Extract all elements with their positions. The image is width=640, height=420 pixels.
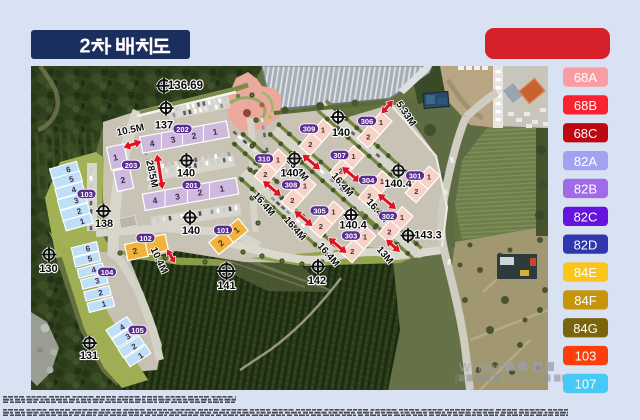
svg-text:308: 308 xyxy=(285,180,298,189)
svg-text:68A: 68A xyxy=(574,70,597,85)
svg-text:137: 137 xyxy=(155,120,173,132)
svg-text:107: 107 xyxy=(575,377,597,392)
svg-text:310: 310 xyxy=(258,154,271,163)
svg-text:84F: 84F xyxy=(574,293,596,308)
svg-text:131: 131 xyxy=(80,350,98,362)
svg-text:143.3: 143.3 xyxy=(414,230,442,242)
svg-text:1: 1 xyxy=(427,173,431,182)
svg-text:1: 1 xyxy=(331,208,335,217)
svg-text:101: 101 xyxy=(217,226,230,235)
svg-text:302: 302 xyxy=(382,212,395,221)
svg-text:82C: 82C xyxy=(574,210,598,225)
svg-text:82A: 82A xyxy=(574,154,597,169)
svg-text:2: 2 xyxy=(366,132,370,141)
svg-text:203: 203 xyxy=(125,161,138,170)
svg-text:2: 2 xyxy=(414,187,418,196)
svg-text:201: 201 xyxy=(185,181,198,190)
svg-text:307: 307 xyxy=(333,151,346,160)
svg-text:68B: 68B xyxy=(574,98,597,113)
svg-text:84E: 84E xyxy=(574,265,597,280)
svg-text:306: 306 xyxy=(361,117,374,126)
svg-text:301: 301 xyxy=(409,171,422,180)
svg-text:303: 303 xyxy=(345,231,358,240)
svg-text:2: 2 xyxy=(319,222,323,231)
svg-text:140: 140 xyxy=(332,127,350,139)
svg-text:140.4: 140.4 xyxy=(339,220,367,232)
svg-text:Windows: Windows xyxy=(503,373,546,385)
svg-text:305: 305 xyxy=(313,206,326,215)
svg-text:102: 102 xyxy=(139,234,152,243)
svg-text:1: 1 xyxy=(276,156,280,165)
svg-text:68C: 68C xyxy=(574,126,598,141)
svg-text:1: 1 xyxy=(363,233,367,242)
svg-text:1: 1 xyxy=(379,118,383,127)
svg-text:2: 2 xyxy=(263,170,267,179)
svg-text:2: 2 xyxy=(79,36,90,58)
svg-text:140: 140 xyxy=(280,168,298,180)
svg-text:130: 130 xyxy=(39,263,57,275)
svg-text:136.69: 136.69 xyxy=(168,80,203,92)
svg-text:82D: 82D xyxy=(574,237,598,252)
svg-text:104: 104 xyxy=(101,268,114,277)
svg-text:138: 138 xyxy=(95,218,113,230)
svg-text:304: 304 xyxy=(362,176,375,185)
svg-text:2: 2 xyxy=(350,247,354,256)
svg-text:1: 1 xyxy=(321,126,325,135)
svg-text:140: 140 xyxy=(182,225,200,237)
svg-text:103: 103 xyxy=(575,349,597,364)
svg-text:2: 2 xyxy=(387,227,391,236)
svg-text:309: 309 xyxy=(303,124,316,133)
svg-text:105: 105 xyxy=(131,326,144,335)
svg-text:82B: 82B xyxy=(574,182,597,197)
svg-text:142: 142 xyxy=(308,275,326,287)
svg-text:141: 141 xyxy=(217,280,235,292)
svg-text:1: 1 xyxy=(351,152,355,161)
svg-text:2: 2 xyxy=(290,196,294,205)
svg-text:1: 1 xyxy=(303,182,307,191)
svg-text:140: 140 xyxy=(177,168,195,180)
svg-text:[: [ xyxy=(455,374,458,385)
svg-text:1: 1 xyxy=(400,213,404,222)
svg-text:202: 202 xyxy=(176,125,189,134)
svg-text:103: 103 xyxy=(80,190,93,199)
svg-text:2: 2 xyxy=(308,140,312,149)
svg-text:84G: 84G xyxy=(573,321,598,336)
